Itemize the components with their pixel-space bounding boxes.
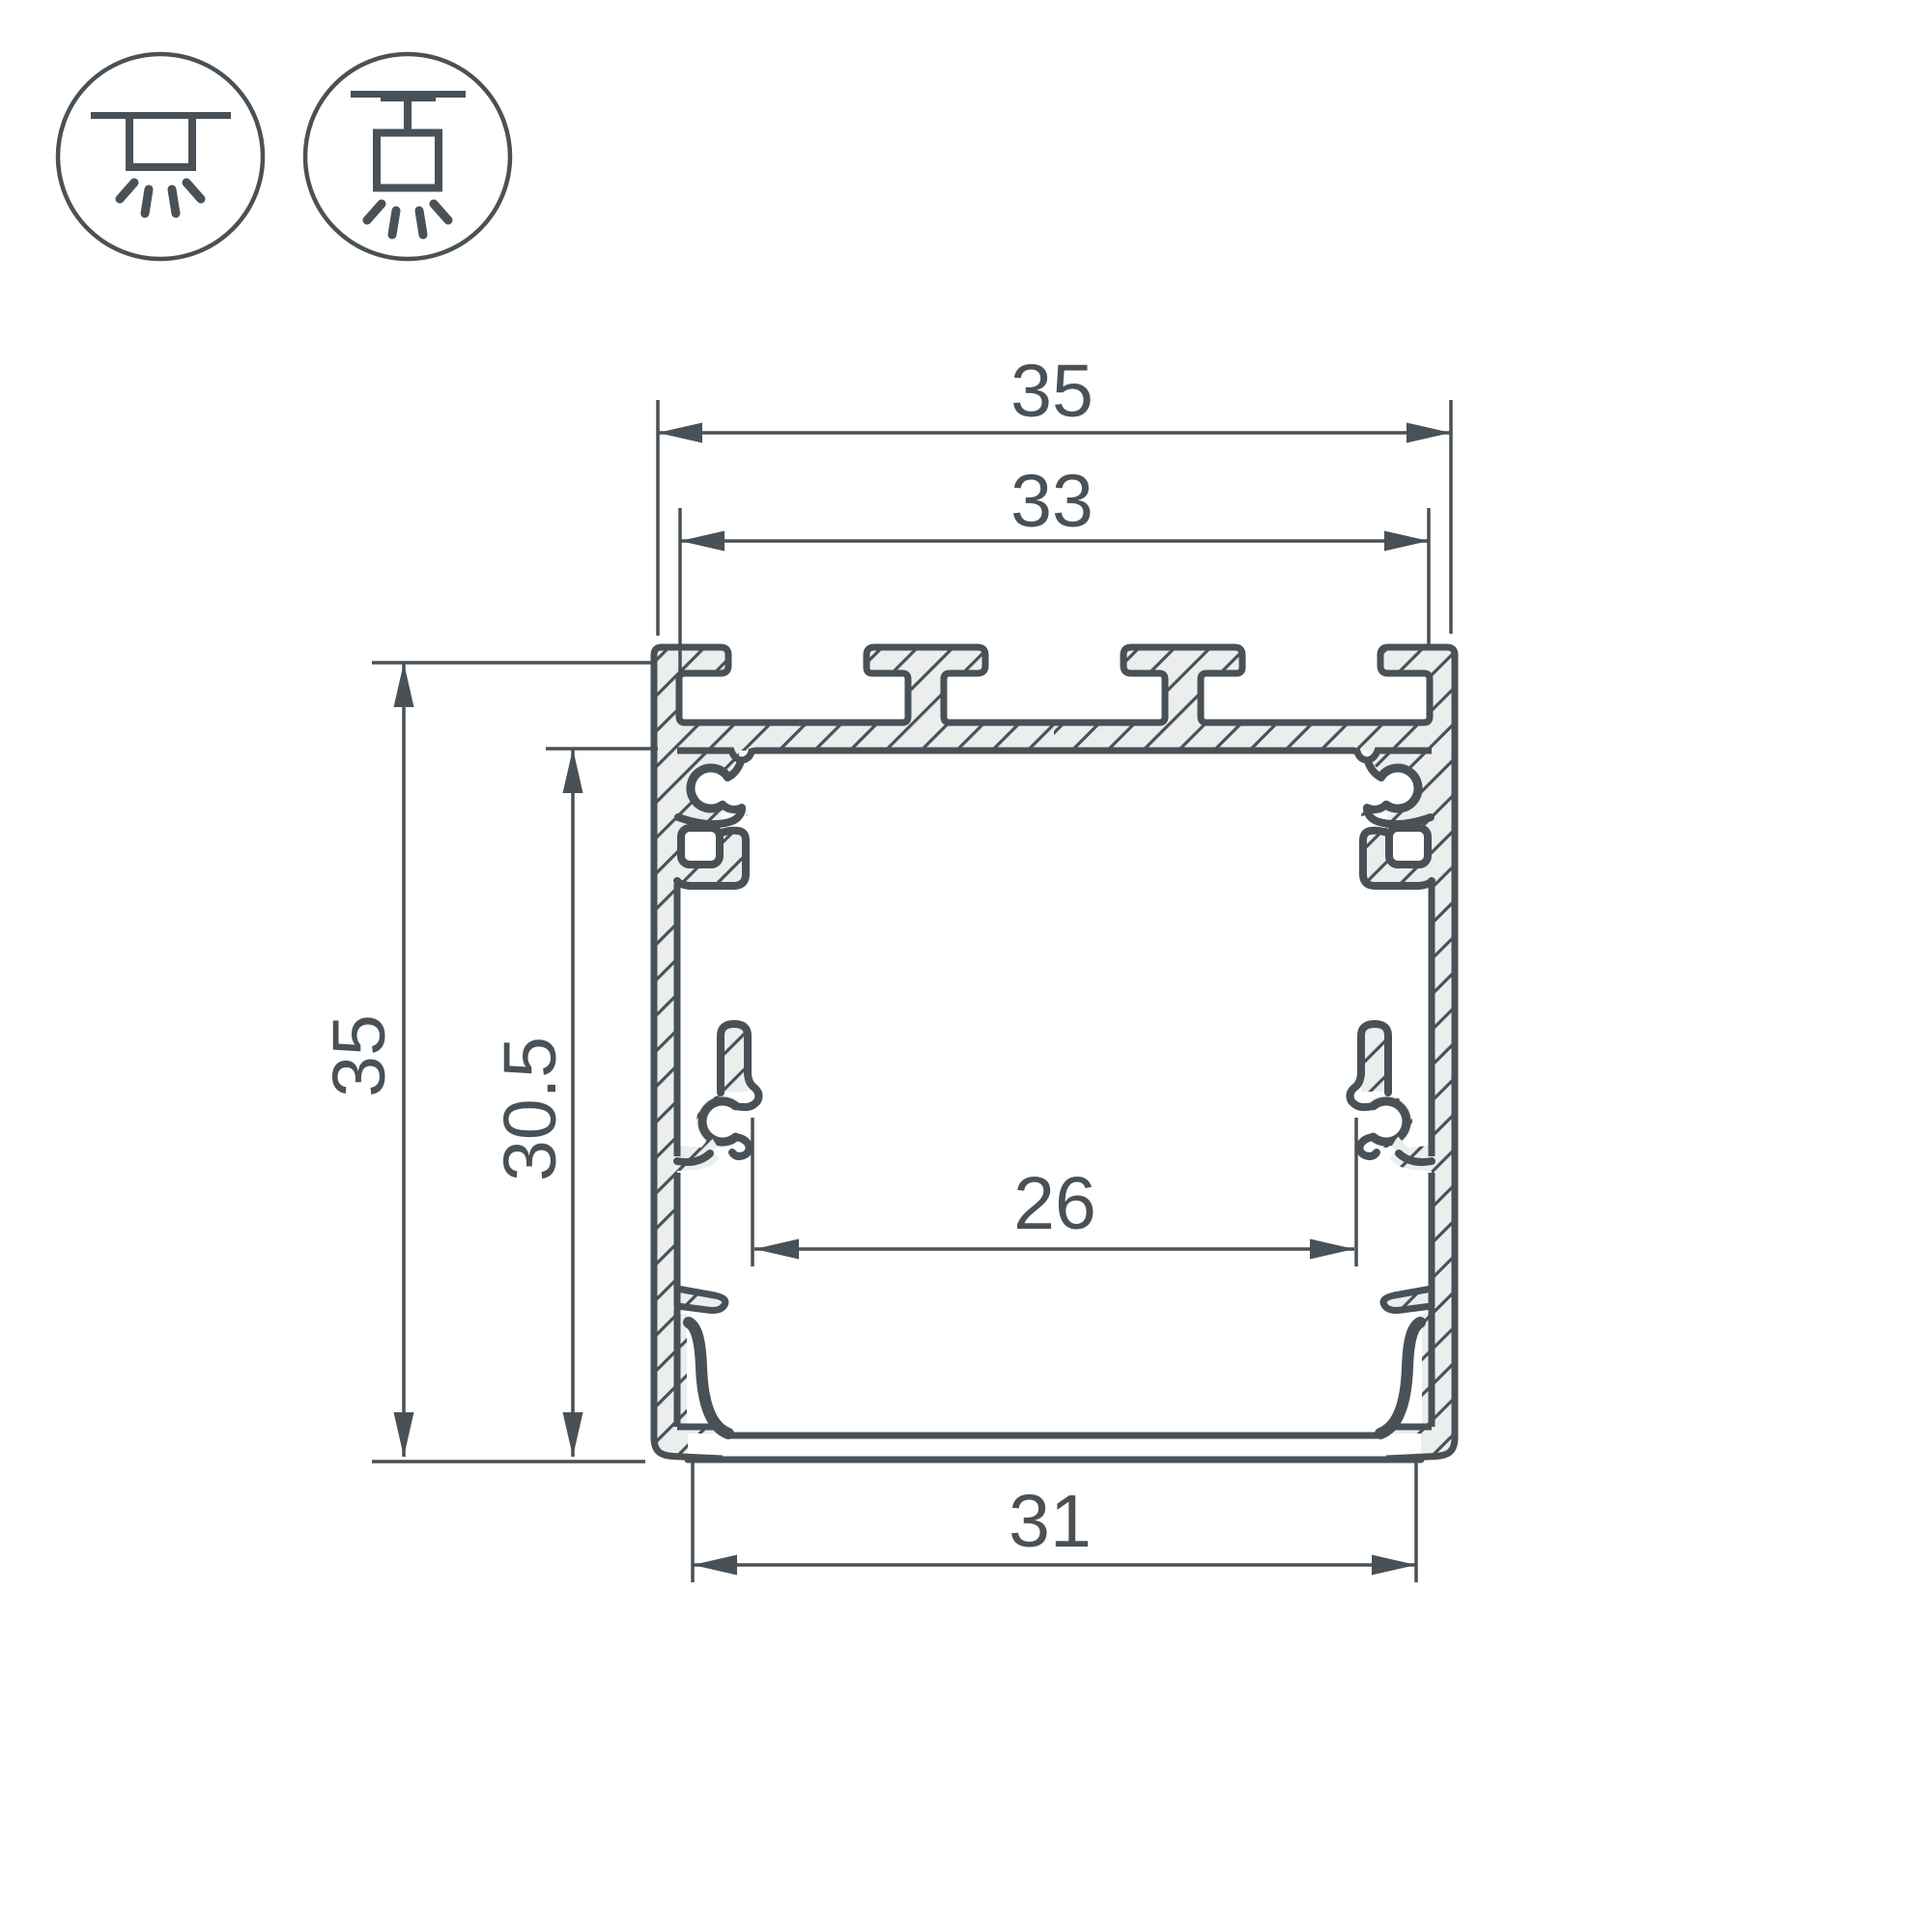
svg-text:33: 33 bbox=[1010, 460, 1094, 543]
svg-text:35: 35 bbox=[318, 1014, 401, 1097]
svg-text:30.5: 30.5 bbox=[489, 1037, 572, 1181]
svg-text:35: 35 bbox=[1010, 350, 1094, 433]
svg-text:26: 26 bbox=[1013, 1162, 1096, 1245]
svg-text:31: 31 bbox=[1009, 1480, 1092, 1563]
